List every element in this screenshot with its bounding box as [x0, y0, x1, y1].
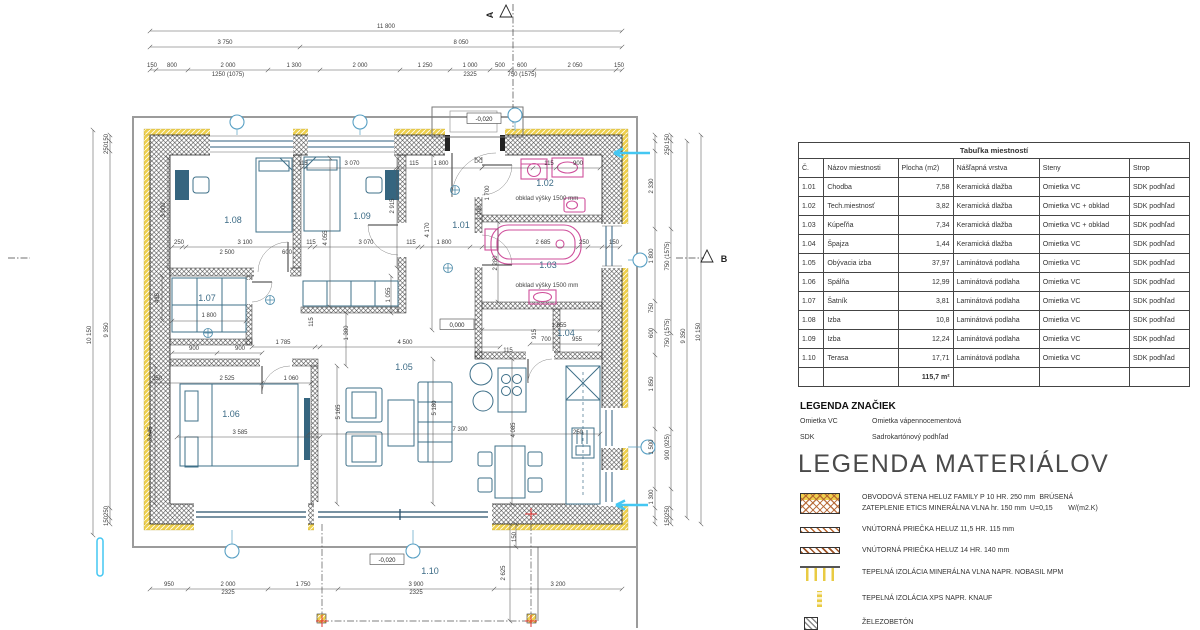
room-table: Tabuľka miestností Č.Názov miestnostiPlo… — [798, 142, 1190, 387]
dim-label: 800 — [167, 63, 178, 69]
dim-label: 250 — [579, 240, 590, 246]
grid-bubbles — [225, 108, 655, 558]
zb-swatch-icon — [804, 617, 818, 630]
dim-label: 9 350 — [104, 322, 110, 338]
dim-label: 115 — [409, 161, 419, 167]
dim-label: 4 055 — [323, 230, 329, 246]
table-row: 1.01Chodba7,58Keramická dlažbaOmietka VC… — [799, 178, 1190, 197]
dim-label: 2 280 — [493, 255, 499, 271]
dim-label: 150 — [614, 63, 625, 69]
dim-label: 250 — [152, 376, 163, 382]
dim-label: 2 915 — [390, 198, 396, 214]
column-header: Strop — [1129, 159, 1189, 178]
material-item: OBVODOVÁ STENA HELUZ FAMILY P 10 HR. 250… — [800, 493, 1192, 515]
dim-label: 1 060 — [283, 376, 299, 382]
dim-label: 3 585 — [232, 430, 248, 436]
legend-materials-title: LEGENDA MATERIÁLOV — [798, 450, 1192, 479]
room-label: 1.04 — [557, 328, 575, 338]
dim-label: 150 — [512, 531, 518, 542]
dim-label: 3 900 — [408, 582, 424, 588]
dim-label: 1 100 — [477, 205, 483, 221]
room-label: 1.01 — [452, 220, 470, 230]
dim-label: 9 350 — [681, 328, 687, 344]
material-item: TEPELNÁ IZOLÁCIA MINERÁLNA VLNA NAPR. NO… — [800, 566, 1192, 581]
room-label: 1.09 — [353, 211, 371, 221]
dim-label: 2 000 — [220, 582, 236, 588]
dim-label: 1 800 — [433, 161, 449, 167]
column-header: Plocha (m2) — [898, 159, 953, 178]
drain-icon — [97, 538, 103, 576]
dim-label: 2325 — [409, 590, 423, 596]
dim-label: 11 800 — [377, 24, 396, 30]
table-row: 1.06Spálňa12,99Laminátová podlahaOmietka… — [799, 273, 1190, 292]
room-label: 1.08 — [224, 215, 242, 225]
dim-label: 250 — [174, 240, 185, 246]
dim-label: 5 165 — [336, 404, 342, 420]
dim-label: 1 500 — [649, 439, 655, 455]
dim-label: 1 785 — [275, 340, 291, 346]
dim-label: 115 — [306, 240, 316, 246]
dim-label: 500 — [495, 63, 506, 69]
dim-label: 115 — [309, 317, 315, 327]
legend-symbols-list: Omietka VCOmietka vápennocementováSDKSad… — [798, 418, 1192, 441]
dim-label: 900 — [573, 161, 584, 167]
dimension-chain — [335, 364, 339, 506]
legend-symbols-title: LEGENDA ZNAČIEK — [800, 401, 1192, 412]
dim-label: 435 — [155, 292, 161, 303]
dim-label: 150 — [104, 515, 110, 526]
level-label: -0,020 — [475, 117, 493, 123]
dim-label: 1 750 — [295, 582, 311, 588]
room-label: 1.10 — [421, 566, 439, 576]
dim-label: 750 (1575) — [507, 72, 536, 78]
dim-label: 3 200 — [550, 582, 566, 588]
dim-label: 3 070 — [358, 240, 374, 246]
dimension-chain — [528, 342, 602, 346]
dim-label: 250 — [665, 505, 671, 516]
dim-label: 900 (925) — [665, 434, 671, 460]
column-header: Steny — [1039, 159, 1129, 178]
dim-label: 250 — [573, 430, 584, 436]
dimension-chain — [170, 351, 264, 355]
dim-label: 1 000 — [462, 63, 478, 69]
dim-label: 1 055 — [386, 287, 392, 303]
dim-label: 915 — [532, 328, 538, 339]
dim-label: 7 300 — [452, 427, 468, 433]
note-label: obklad výšky 1500 mm — [516, 282, 579, 289]
table-row: 1.10Terasa17,71Laminátová podlahaOmietka… — [799, 349, 1190, 368]
material-item: ŽELEZOBETÓN — [800, 617, 1192, 630]
extwall-swatch-icon — [800, 493, 840, 514]
dim-label: 8 050 — [453, 40, 469, 46]
room-label: 1.02 — [536, 178, 554, 188]
xps-swatch-icon — [817, 591, 822, 607]
dim-label: 900 — [189, 346, 200, 352]
dim-label: 115 — [544, 161, 554, 167]
table-row: 1.09Izba12,24Laminátová podlahaOmietka V… — [799, 330, 1190, 349]
wool-swatch-icon — [800, 566, 840, 581]
dimension-chain — [175, 435, 322, 439]
dim-label: 4 500 — [397, 340, 413, 346]
dim-label: 250 — [104, 143, 110, 154]
dim-label: 1 800 — [201, 313, 217, 319]
table-row: 1.03Kúpeľňa7,34Keramická dlažbaOmietka V… — [799, 216, 1190, 235]
dim-label: 250 — [104, 505, 110, 516]
info-panel: Tabuľka miestností Č.Názov miestnostiPlo… — [798, 142, 1192, 630]
dim-label: 115 — [298, 161, 308, 167]
dim-label: 1 850 — [649, 376, 655, 392]
floor-plan-drawing: 11 8003 7508 0501508002 0001 3002 0001 2… — [0, 0, 780, 630]
dim-label: 5 180 — [432, 400, 438, 416]
dim-label: 2 050 — [567, 63, 583, 69]
dim-label: 2 000 — [220, 63, 236, 69]
dim-label: 600 — [517, 63, 528, 69]
dim-label: 10 150 — [87, 325, 93, 344]
dim-label: 1 300 — [286, 63, 302, 69]
dim-label: 3 070 — [344, 161, 360, 167]
column-header: Č. — [799, 159, 824, 178]
table-row: 1.04Špajza1,44Keramická dlažbaOmietka VC… — [799, 235, 1190, 254]
dim-label: 1 800 — [436, 240, 452, 246]
dim-label: 600 — [649, 327, 655, 338]
sec-label: B — [721, 254, 728, 264]
level-label: 0,000 — [449, 323, 465, 329]
column-header: Nášľapná vrstva — [953, 159, 1039, 178]
table-header-row: Č.Názov miestnostiPlocha (m2)Nášľapná vr… — [799, 159, 1190, 178]
room-label: 1.07 — [198, 293, 216, 303]
dim-label: 950 — [164, 582, 175, 588]
dimension-chain — [170, 319, 248, 323]
p140-swatch-icon — [800, 547, 840, 554]
dim-label: 750 (1575) — [665, 318, 671, 347]
dim-label: 150 — [665, 133, 671, 144]
floor-plan-sheet: 11 8003 7508 0501508002 0001 3002 0001 2… — [0, 0, 1200, 630]
symbol-legend-item: SDKSadrokartónový podhľad — [800, 434, 1192, 441]
note-label: obklad výšky 1500 mm — [516, 195, 579, 202]
lamp-icon — [204, 186, 460, 338]
p115-swatch-icon — [800, 527, 840, 533]
material-item: VNÚTORNÁ PRIEČKA HELUZ 14 HR. 140 mm — [800, 546, 1192, 557]
room-label: 1.05 — [395, 362, 413, 372]
dim-label: 2 330 — [649, 178, 655, 194]
dim-label: 10 150 — [696, 322, 702, 341]
dimension-chain — [480, 328, 602, 332]
level-label: -0,020 — [378, 558, 396, 564]
dim-label: 150 — [147, 63, 158, 69]
dimension-chain — [431, 357, 435, 506]
dim-label: 150 — [665, 515, 671, 526]
dim-label: 700 — [541, 337, 552, 343]
dim-label: 115 — [406, 240, 416, 246]
room-label: 1.03 — [539, 260, 557, 270]
room-table-title: Tabuľka miestností — [799, 143, 1190, 159]
total-area: 115,7 m² — [898, 368, 953, 387]
dim-label: 1 250 — [417, 63, 433, 69]
dim-label: 150 — [104, 133, 110, 144]
dim-label: 750 (1575) — [665, 241, 671, 270]
room-label: 1.06 — [222, 409, 240, 419]
dim-label: 2 625 — [501, 565, 507, 581]
dim-label: 2 685 — [535, 240, 551, 246]
dim-label: 600 — [282, 250, 293, 256]
dim-label: 1 700 — [485, 185, 491, 201]
dim-label: 3 100 — [237, 240, 253, 246]
dimension-chain — [430, 153, 434, 332]
dim-label: 4 170 — [425, 222, 431, 238]
dim-label: 750 — [649, 302, 655, 313]
dim-label: 3 645 — [148, 426, 154, 442]
dim-label: 115 — [503, 348, 513, 354]
sec-label: A — [485, 11, 495, 18]
dim-label: 150 — [609, 240, 620, 246]
symbol-legend-item: Omietka VCOmietka vápennocementová — [800, 418, 1192, 425]
dim-label: 2 000 — [352, 63, 368, 69]
dim-label: 900 — [235, 346, 246, 352]
table-row: 1.07Šatník3,81Laminátová podlahaOmietka … — [799, 292, 1190, 311]
dim-label: 4 085 — [511, 422, 517, 438]
material-item: TEPELNÁ IZOLÁCIA XPS NAPR. KNAUF — [800, 591, 1192, 607]
material-item: VNÚTORNÁ PRIEČKA HELUZ 11,5 HR. 115 mm — [800, 525, 1192, 536]
dim-label: 3 750 — [217, 40, 233, 46]
table-row: 1.05Obývacia izba37,97Laminátová podlaha… — [799, 254, 1190, 273]
dim-label: 1 800 — [649, 248, 655, 264]
table-row: 1.08Izba10,8Laminátová podlahaOmietka VC… — [799, 311, 1190, 330]
column-header: Názov miestnosti — [824, 159, 898, 178]
dim-label: 2325 — [463, 72, 477, 78]
dim-label: 1 300 — [649, 489, 655, 505]
dim-label: 3 000 — [161, 202, 167, 218]
table-total-row: 115,7 m² — [799, 368, 1190, 387]
materials-list: OBVODOVÁ STENA HELUZ FAMILY P 10 HR. 250… — [798, 493, 1192, 630]
table-row: 1.02Tech.miestnosť3,82Keramická dlažbaOm… — [799, 197, 1190, 216]
dim-label: 2325 — [221, 590, 235, 596]
dim-label: 2 500 — [219, 250, 235, 256]
dim-label: 1 380 — [344, 325, 350, 341]
dim-label: 2 525 — [219, 376, 235, 382]
room-table-body: 1.01Chodba7,58Keramická dlažbaOmietka VC… — [799, 178, 1190, 368]
dim-label: 250 — [665, 144, 671, 155]
dim-label: 1250 (1075) — [212, 72, 244, 78]
